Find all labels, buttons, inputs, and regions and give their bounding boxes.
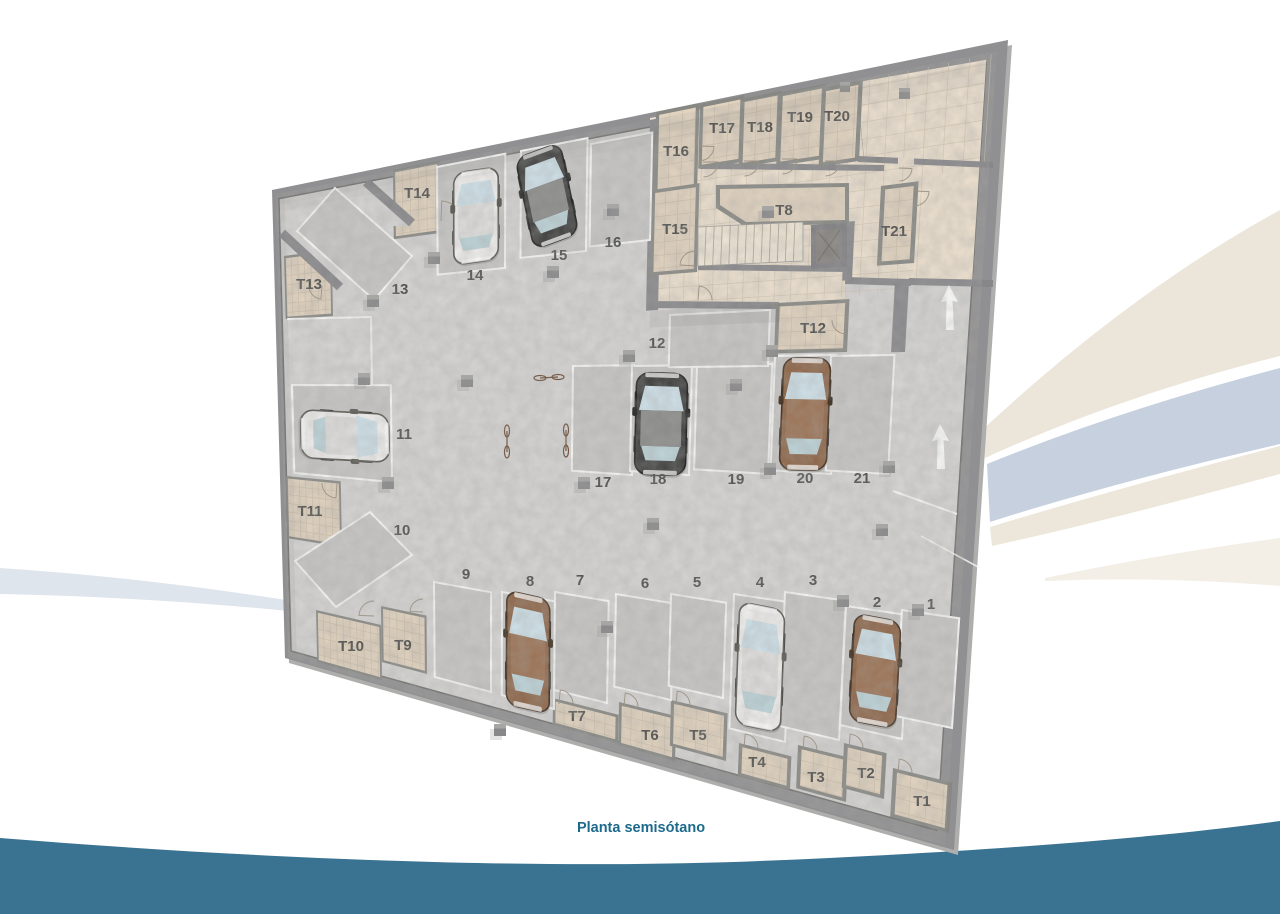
svg-text:Planta semisótano: Planta semisótano [577,820,705,836]
